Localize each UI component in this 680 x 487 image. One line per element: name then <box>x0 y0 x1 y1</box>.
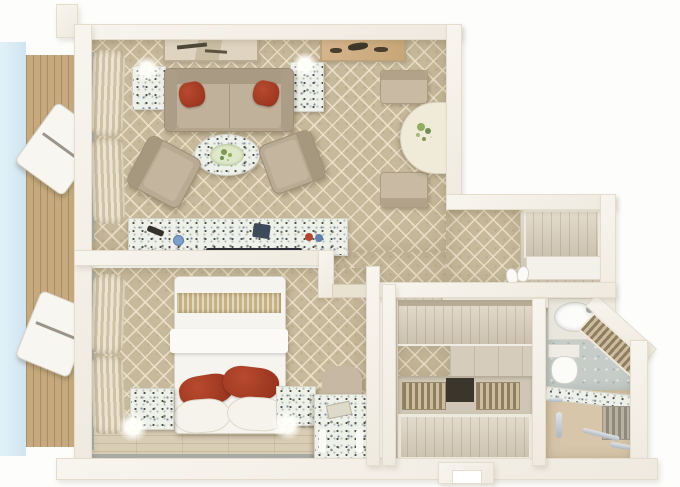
bed-lamp-left <box>118 412 148 442</box>
cup-red <box>305 233 313 241</box>
bump-out-inset <box>452 470 482 484</box>
flower-vase <box>417 123 425 131</box>
shoe-rack-right <box>476 382 520 410</box>
tablet <box>252 223 271 239</box>
plant-sprig <box>221 149 227 155</box>
wall-closet-left <box>382 284 396 466</box>
art-figure <box>330 48 342 53</box>
gold-runner <box>177 293 281 313</box>
bedroom-curtain-upper <box>91 273 126 354</box>
wall-hall-bottom <box>366 282 616 298</box>
desk-chair <box>322 366 362 396</box>
wall-living-bedroom-divider <box>74 250 334 266</box>
shoe-rack-left <box>402 382 446 410</box>
wall-top <box>74 24 462 40</box>
dining-chair-bottom <box>380 172 428 208</box>
toilet-bowl <box>551 356 578 384</box>
closet-hamper <box>446 378 474 402</box>
bedroom-door-threshold <box>332 284 370 298</box>
coffee-table-plate <box>210 144 244 166</box>
sky-strip <box>0 42 26 456</box>
living-curtain-upper <box>91 49 126 136</box>
sofa-armrest-right <box>281 69 293 131</box>
towel-ring <box>549 398 563 402</box>
cup-blue <box>173 235 184 246</box>
wall-bottom <box>56 458 658 480</box>
art-brushstroke <box>177 42 207 49</box>
table-lamp-right <box>292 52 318 78</box>
dining-chair-back <box>381 71 427 80</box>
dining-chair-back <box>381 198 427 207</box>
entry-closet-panel <box>524 210 600 258</box>
living-curtain-lower <box>91 137 126 224</box>
entry-shelf <box>526 256 602 280</box>
double-bed <box>174 276 286 434</box>
cup-navy <box>315 234 323 242</box>
coffee-table <box>194 134 260 176</box>
bed-lamp-right <box>272 410 302 440</box>
bed-white-pillow-left <box>172 397 232 435</box>
closet-shelf-row <box>450 346 532 376</box>
grab-bar-vertical <box>556 412 562 438</box>
closet-wardrobe-top <box>398 300 532 347</box>
table-lamp-left <box>134 56 160 82</box>
sofa <box>164 68 294 132</box>
wall-hall-top <box>446 194 616 210</box>
wardrobe-shelf-shadow <box>398 300 532 306</box>
art-brushstroke <box>205 49 227 54</box>
lounger-fold-line <box>35 321 75 340</box>
art-figure <box>374 47 388 52</box>
dining-chair-top <box>380 70 428 104</box>
vanity-tray <box>326 401 352 420</box>
wall-left <box>74 24 92 470</box>
closet-wardrobe-bottom <box>398 414 532 460</box>
remote-control <box>146 225 164 237</box>
closet-carpet-patch <box>398 346 450 376</box>
wall-right-lower <box>630 340 648 466</box>
floorplan-canvas <box>0 0 680 487</box>
wall-closet-bathroom-divider <box>532 298 546 466</box>
wall-bedroom-right <box>366 266 380 466</box>
rolled-towel-right <box>356 429 363 453</box>
vanity-desk <box>314 394 368 460</box>
sofa-armrest-left <box>165 69 177 131</box>
duvet-fold <box>170 329 288 353</box>
rolled-towel-left <box>319 429 326 453</box>
wall-living-right <box>446 24 462 210</box>
art-figure <box>348 42 369 52</box>
